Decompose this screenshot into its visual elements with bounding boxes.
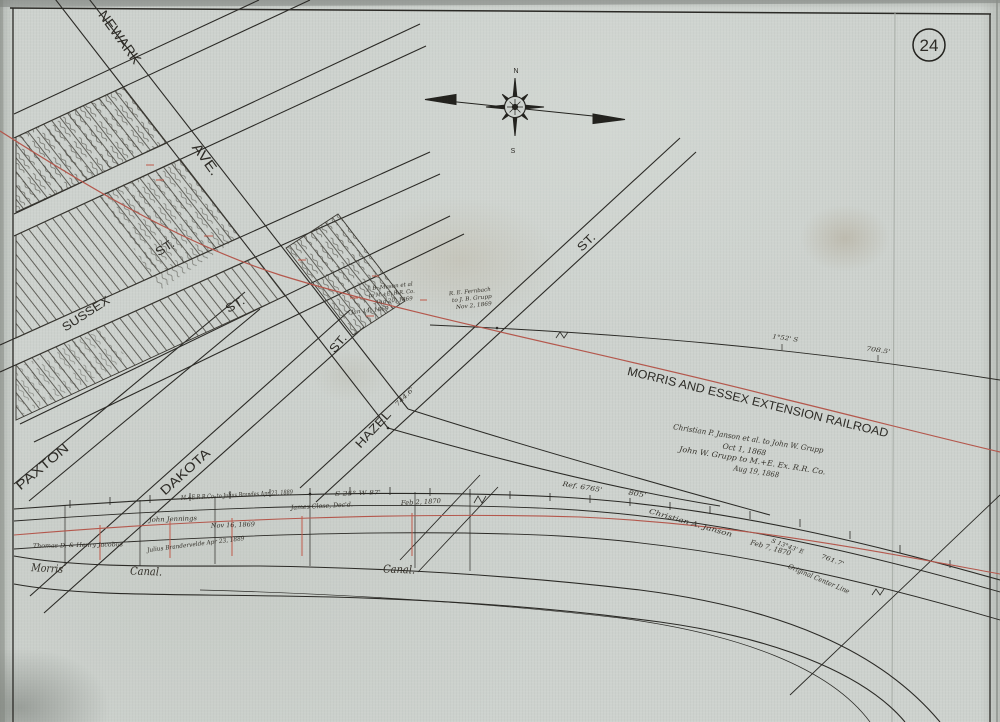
meas-761-7: 761.7' xyxy=(820,553,845,568)
map-canvas: 24 xyxy=(0,0,1000,722)
canal-label-morris: Morris xyxy=(30,561,64,576)
canal-bank-north xyxy=(14,556,940,722)
meas-805: 805' xyxy=(628,489,647,500)
survey-point-1 xyxy=(387,427,390,430)
street-newark: NEWARK xyxy=(95,7,145,67)
fold-crease xyxy=(892,13,895,722)
compass-rose xyxy=(425,78,625,136)
sheet-number-badge: 24 xyxy=(913,29,945,61)
meas-s25w: S 25° W 87' xyxy=(335,489,382,498)
lot-blocks xyxy=(16,87,405,420)
brandervelde: Julius Brandervelde Apr 23, 1889 xyxy=(145,535,245,554)
compass-needle-east-tip xyxy=(593,114,625,124)
close: James Close, Dec'd. xyxy=(289,500,353,511)
corridor-lines xyxy=(14,325,1000,722)
compass-south-label: S xyxy=(511,148,516,155)
compass-needle-west-tip xyxy=(425,95,456,105)
canal-label-canal-2: Canal. xyxy=(383,562,415,576)
junction-line-1 xyxy=(388,428,720,506)
paper-edge-left xyxy=(0,0,5,722)
survey-point-3 xyxy=(309,493,312,496)
railroad-base-line xyxy=(430,325,1000,380)
scanned-map-sheet: 24 xyxy=(0,0,1000,722)
jennings-date: Nov 16, 1869 xyxy=(210,520,255,530)
original-center-line: Original Center Line xyxy=(787,563,851,596)
canal-bank-south xyxy=(14,584,905,722)
survey-point-2 xyxy=(496,327,499,330)
janson-canal: Christian A. Janson xyxy=(648,507,733,539)
sheet-number: 24 xyxy=(920,36,939,55)
paper-edge-top xyxy=(0,0,1000,7)
meas-708-5: 708.5' xyxy=(866,345,891,355)
brandes-deed: M.+E.R.R.Co. to Julius Brandes Apr 23, 1… xyxy=(180,488,293,502)
street-hazel-st: ST. xyxy=(574,230,598,254)
street-st-3: ST. xyxy=(326,331,350,355)
canal-bank-inner xyxy=(200,590,870,722)
compass-hub-dot xyxy=(512,104,517,109)
canal-label-canal-1: Canal. xyxy=(130,564,162,578)
border-top xyxy=(10,8,991,14)
street-newark-ave: AVE. xyxy=(189,140,223,179)
railroad-name: MORRIS AND ESSEX EXTENSION RAILROAD xyxy=(626,364,890,440)
jacobus: Thomas D. & Henry Jacobus xyxy=(33,541,123,550)
compass-north-label: N xyxy=(513,68,518,75)
meas-1-52: 1°52' S xyxy=(772,333,799,344)
street-dakota: DAKOTA xyxy=(157,445,213,498)
street-paxton: PAXTON xyxy=(13,440,72,493)
